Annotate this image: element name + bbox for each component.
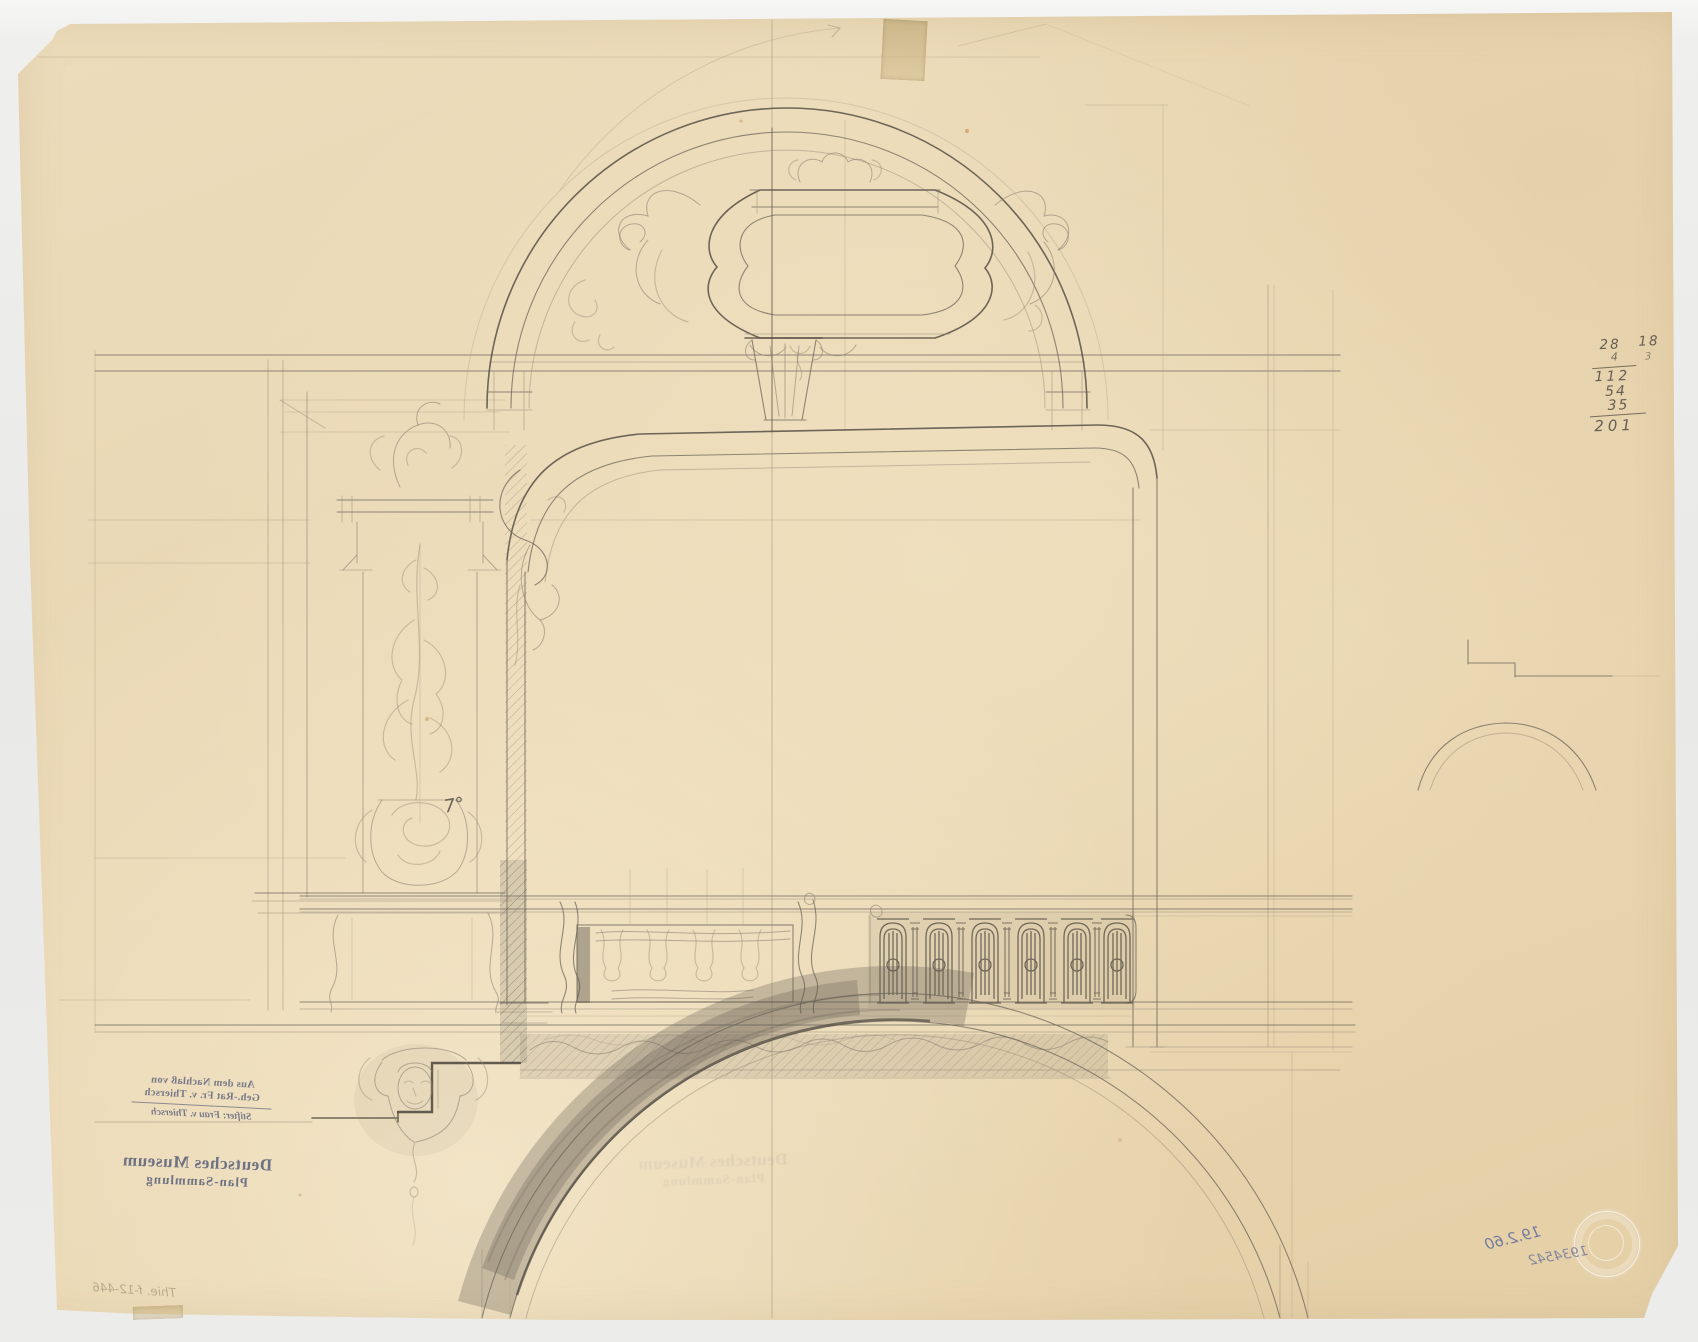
museum-stamp: Deutsches Museum Plan-Sammlung (105, 1150, 288, 1192)
construction-lines (38, 20, 1352, 1318)
sum-term-3: 35 (1607, 397, 1629, 414)
angle-note: 7° (442, 793, 466, 817)
sum-factor-2: 18 (1638, 333, 1660, 350)
tape-remnant-bottom (133, 1305, 183, 1320)
mask-console (354, 1044, 488, 1245)
sum-factor-4: 3 (1645, 351, 1654, 362)
step-profile-detail (1468, 640, 1660, 677)
scanner-bed: .p1{stroke:#6e665b;stroke-width:1.1;opac… (0, 0, 1698, 1342)
flat-arch-detail (1418, 723, 1596, 790)
left-pilaster (252, 402, 512, 1013)
pencil-sum: 28 18 4 3 112 54 35 201 (1583, 331, 1679, 444)
architectural-sketch: .p1{stroke:#6e665b;stroke-width:1.1;opac… (0, 0, 1698, 1342)
lower-arch (458, 966, 1308, 1318)
floral-ornament (355, 545, 481, 885)
provenance-stamp: Aus dem Nachlaß von Geh.-Rat Fr. v. Thie… (131, 1072, 273, 1124)
main-arch (464, 25, 1108, 430)
tape-remnant-top (880, 19, 927, 81)
ghost-museum-stamp: Deutsches Museum Plan-Sammlung (627, 1149, 798, 1191)
sum-total: 201 (1594, 416, 1635, 435)
sum-factor-3: 4 (1611, 350, 1620, 363)
tympanum-cartouche (569, 153, 1069, 380)
